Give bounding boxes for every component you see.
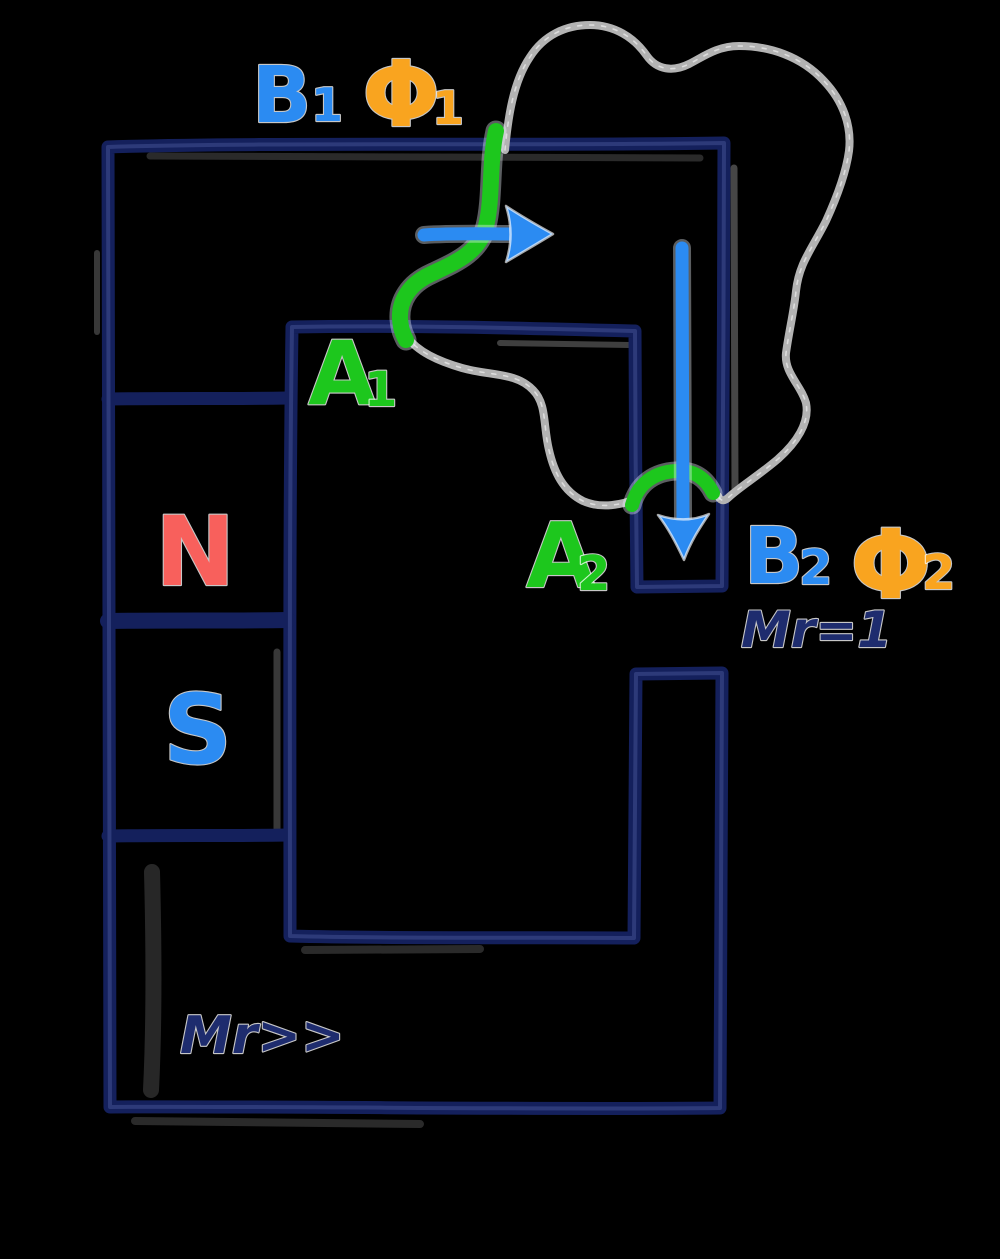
magnetic-circuit-sketch: B 1 Φ 1 A 1 A 2 B 2 Φ 2 N S Mr=1 Mr>> (0, 0, 1000, 1259)
label-b1-sub: 1 (311, 78, 343, 132)
shadow-smudge (151, 872, 153, 1090)
label-phi1-sub: 1 (432, 81, 464, 135)
label-a1-sub: 1 (364, 362, 397, 418)
shadow-smudge (135, 1121, 420, 1124)
magnet-north-label: N (155, 496, 235, 608)
label-a2-sub: 2 (577, 546, 610, 602)
shadow-smudge (500, 343, 630, 345)
label-phi2-sub: 2 (922, 545, 955, 601)
label-phi1-base: Φ (362, 41, 440, 148)
core-permeability-label: Mr>> (180, 1006, 345, 1066)
shadow-smudge (734, 168, 735, 492)
b1-arrow-shaft (424, 234, 514, 235)
label-b1-base: B (252, 51, 311, 141)
b2-arrow-shaft (682, 248, 683, 518)
magnet-divider-middle (108, 620, 288, 621)
magnet-divider-bottom (108, 835, 288, 836)
magnet-divider-top (108, 398, 288, 399)
label-b2-sub: 2 (799, 540, 832, 596)
gap-permeability-label: Mr=1 (741, 601, 892, 659)
label-b2-base: B (744, 512, 803, 602)
shadow-smudge (305, 949, 480, 950)
magnet-south-label: S (163, 674, 232, 786)
shadow-smudge (150, 156, 700, 158)
